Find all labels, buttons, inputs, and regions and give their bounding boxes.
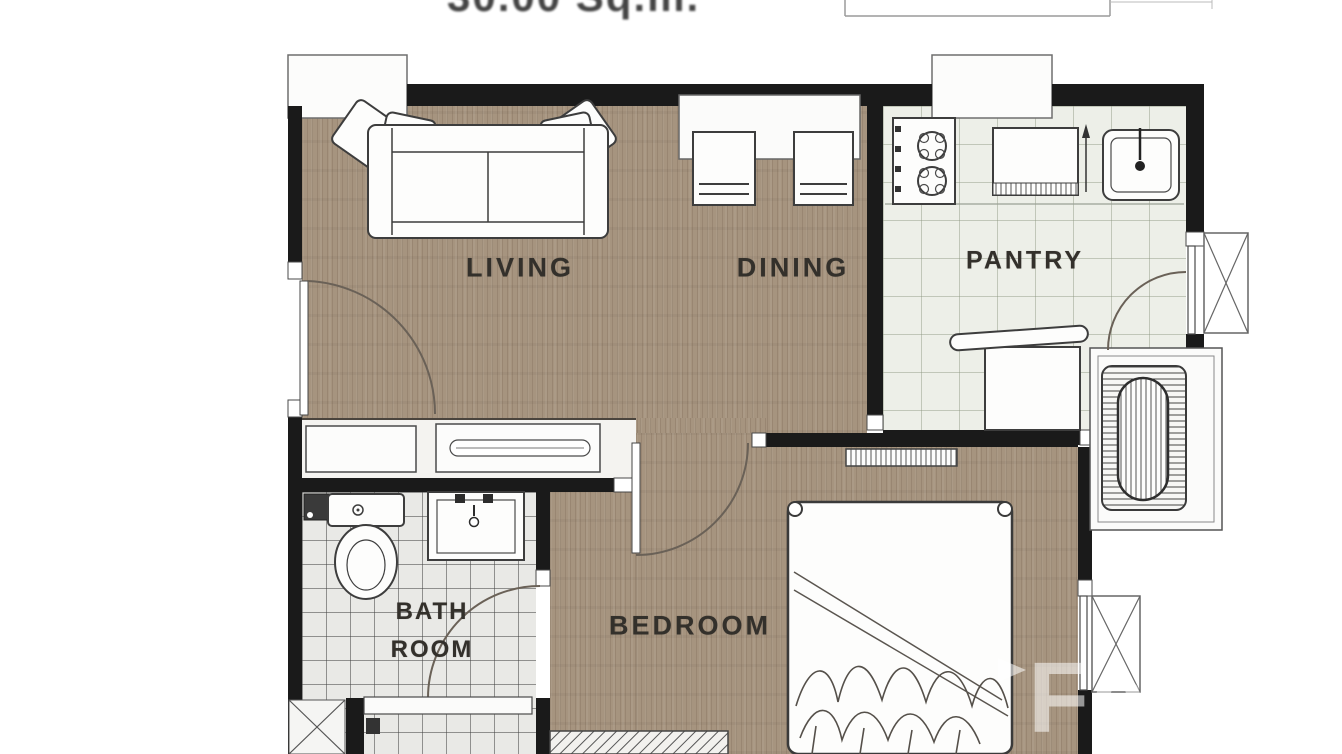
dining-chair-1 bbox=[693, 132, 755, 205]
bedroom-door bbox=[632, 443, 748, 555]
sofa bbox=[330, 98, 618, 238]
dining-chair-2 bbox=[794, 132, 853, 205]
service-balcony bbox=[1090, 348, 1222, 530]
kitchen-sink bbox=[1103, 128, 1179, 200]
headboard-shelf bbox=[846, 449, 957, 466]
nook-console bbox=[436, 424, 600, 472]
bathroom-label-line1: BATH bbox=[396, 598, 469, 626]
dining-label: DINING bbox=[737, 253, 850, 284]
double-bed bbox=[788, 502, 1012, 754]
living-label: LIVING bbox=[466, 253, 574, 284]
living-balcony-ledge bbox=[288, 55, 407, 118]
counter-appliance bbox=[993, 124, 1090, 195]
lower-counter bbox=[950, 325, 1089, 430]
floor-drain-box bbox=[304, 494, 330, 520]
balcony-door bbox=[1108, 272, 1186, 350]
title-block-remnant bbox=[845, 0, 1212, 16]
watermark-letters: Fa bbox=[1028, 648, 1149, 748]
foot-cabinet bbox=[550, 731, 728, 754]
toilet bbox=[328, 494, 404, 599]
condenser-unit bbox=[1102, 366, 1186, 510]
wash-basin bbox=[428, 492, 524, 560]
pantry-balcony-ledge bbox=[932, 55, 1052, 118]
nook-cabinet bbox=[306, 426, 416, 472]
louvre-window-pantry bbox=[1204, 233, 1248, 333]
shower-enclosure bbox=[289, 697, 532, 754]
entrance-door bbox=[300, 281, 435, 415]
floorplan-canvas: 30.00 Sq.m. bbox=[0, 0, 1342, 754]
pantry-label: PANTRY bbox=[966, 247, 1084, 276]
bedroom-label: BEDROOM bbox=[609, 611, 771, 642]
stove bbox=[893, 118, 955, 204]
bathroom-label-line2: ROOM bbox=[391, 636, 474, 664]
